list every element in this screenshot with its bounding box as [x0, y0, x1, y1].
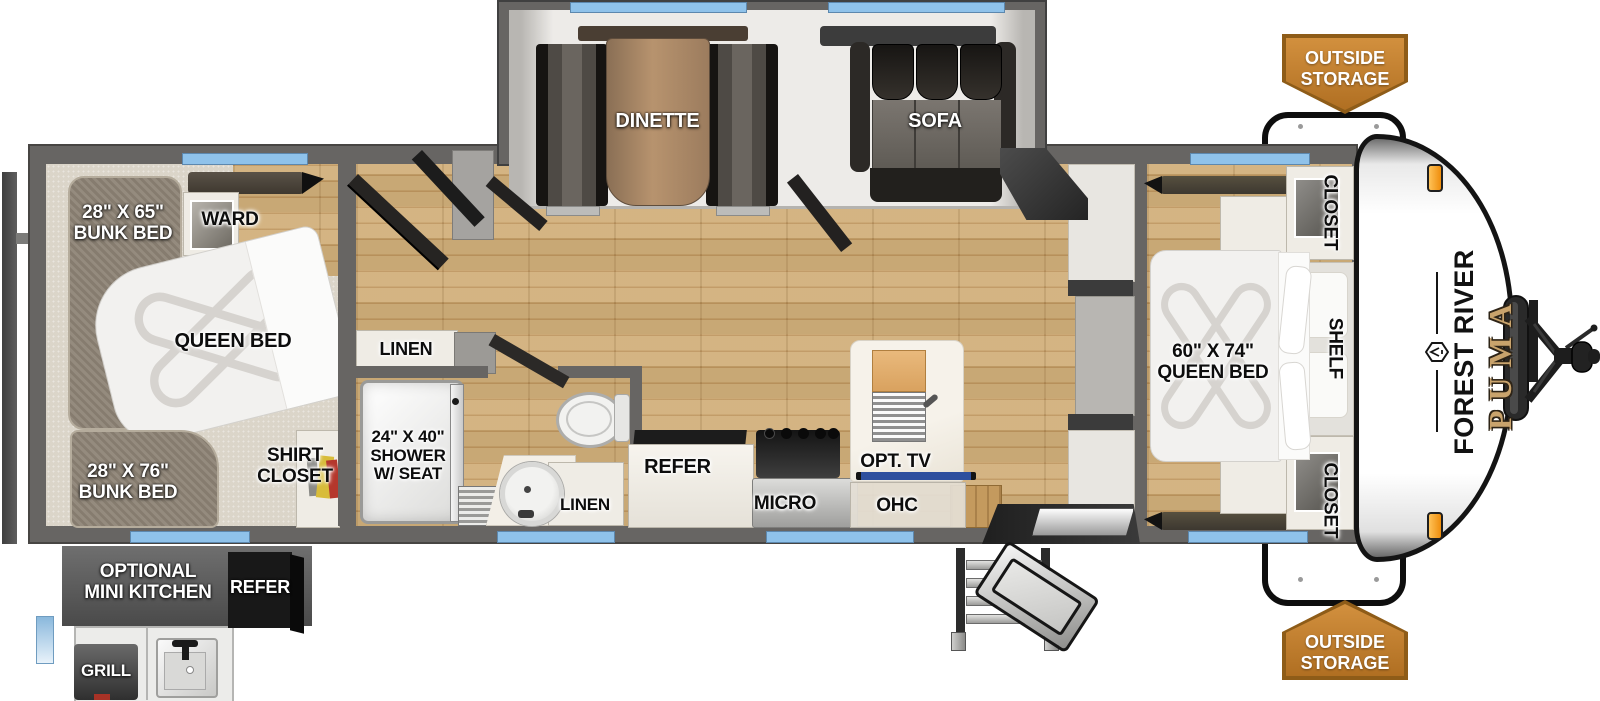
entry-door-panel [991, 557, 1083, 636]
marker-light [1427, 512, 1443, 540]
grill-accent [94, 694, 110, 700]
mini-kitchen-label: OPTIONALMINI KITCHEN [66, 562, 230, 604]
forest-river-logo-icon [1425, 342, 1449, 362]
window [1188, 531, 1308, 543]
opt-tv-label: OPT. TV [848, 452, 943, 473]
bunk-top-label: 28" X 65"BUNK BED [58, 203, 188, 245]
micro-label: MICRO [740, 494, 830, 515]
linen-upper-label: LINEN [360, 340, 452, 360]
closet-bottom-label: CLOSET [1319, 455, 1340, 545]
linen-lower-label: LINEN [550, 496, 620, 515]
window [182, 153, 308, 165]
propane-bottle [36, 616, 54, 664]
master-cabinet-panel [1068, 164, 1135, 282]
upper-bunk-valance [188, 172, 304, 194]
marker-light [1427, 164, 1443, 192]
master-valance [1160, 176, 1292, 194]
slideout-window [828, 2, 1005, 13]
outside-storage-badge-top: OUTSIDE STORAGE [1282, 34, 1408, 114]
shirt-closet-label: SHIRTCLOSET [250, 446, 340, 488]
outside-storage-badge-bottom: OUTSIDE STORAGE [1282, 600, 1408, 680]
sink-drain [524, 486, 531, 493]
mini-refer-label: REFER [228, 578, 292, 598]
badge-text: STORAGE [1301, 653, 1390, 674]
brand-name: FOREST RIVER [1449, 249, 1480, 455]
bathroom-wall-top [356, 366, 488, 378]
sofa-armrest [850, 42, 870, 172]
sofa-label: SOFA [885, 110, 985, 132]
frame-screw [1374, 577, 1379, 582]
master-cabinet-shelf-edge [1068, 280, 1133, 296]
dinette-label: DINETTE [600, 110, 715, 132]
tv-bar [856, 472, 976, 480]
mini-kitchen-divider [146, 626, 148, 700]
kitchen-sink-louvers [872, 392, 926, 442]
badge-text: OUTSIDE [1305, 48, 1385, 69]
sofa-back-cushion [872, 44, 914, 100]
refer-label: REFER [630, 456, 725, 478]
entry-door-open [973, 540, 1100, 654]
outdoor-sink-dot [186, 666, 194, 674]
window [497, 531, 615, 543]
bed-overhead-cabinet [1220, 456, 1294, 514]
closet-top-label: CLOSET [1319, 167, 1340, 257]
shelf-label: SHELF [1324, 303, 1345, 393]
master-valance [1160, 512, 1292, 530]
toilet-seat-line [566, 401, 612, 437]
rv-floorplan: DINETTE SOFA 28" X 65"BUNK BED WARD [0, 0, 1600, 701]
frame-screw [1298, 577, 1303, 582]
model-name: PUMA [1482, 294, 1519, 430]
mini-refer-side [290, 554, 304, 633]
entry-sill [1032, 508, 1134, 536]
sink-faucet [518, 510, 534, 518]
shower-door-handle [452, 398, 459, 405]
slideout-window [570, 2, 747, 13]
bed-overhead-cabinet [1220, 196, 1294, 254]
dinette-bench [706, 44, 778, 206]
rear-bumper [2, 172, 17, 544]
sofa-back-cushion [960, 44, 1002, 100]
stove-knob [764, 428, 775, 439]
queen-bed-label: QUEEN BED [158, 330, 308, 352]
window [1190, 153, 1310, 165]
sofa-front [870, 168, 1002, 202]
badge-text: STORAGE [1301, 69, 1390, 90]
badge-face: OUTSIDE STORAGE [1286, 604, 1404, 676]
brand-line [1436, 272, 1438, 334]
sofa-ledge [820, 26, 996, 46]
ward-label: WARD [195, 210, 265, 231]
master-cabinet-shelf-edge [1068, 414, 1133, 430]
frame-screw [1374, 124, 1379, 129]
master-bed-label: 60" X 74"QUEEN BED [1145, 342, 1281, 384]
brand-line [1436, 370, 1438, 432]
step-rail [956, 548, 965, 634]
bunkroom-wall [338, 278, 356, 526]
sofa-back-cushion [916, 44, 958, 100]
bench-foot [716, 206, 770, 216]
bunk-bottom-label: 28" X 76"BUNK BED [60, 462, 196, 504]
outdoor-faucet-stem [182, 646, 189, 660]
bench-foot [546, 206, 600, 216]
badge-text: OUTSIDE [1305, 632, 1385, 653]
brand-block: FOREST RIVER [1428, 202, 1476, 502]
window [130, 531, 250, 543]
step-foot [951, 632, 966, 651]
toilet-tank [614, 394, 630, 442]
shower-label: 24" X 40"SHOWERW/ SEAT [362, 428, 454, 484]
window [766, 531, 914, 543]
cutting-board [872, 350, 926, 392]
dinette-bench [536, 44, 608, 206]
grill-label: GRILL [74, 662, 138, 681]
ohc-label: OHC [852, 496, 942, 517]
badge-face: OUTSIDE STORAGE [1286, 38, 1404, 110]
master-cabinet-recess [1075, 296, 1135, 416]
model-block: PUMA [1480, 267, 1520, 457]
frame-screw [1298, 124, 1303, 129]
